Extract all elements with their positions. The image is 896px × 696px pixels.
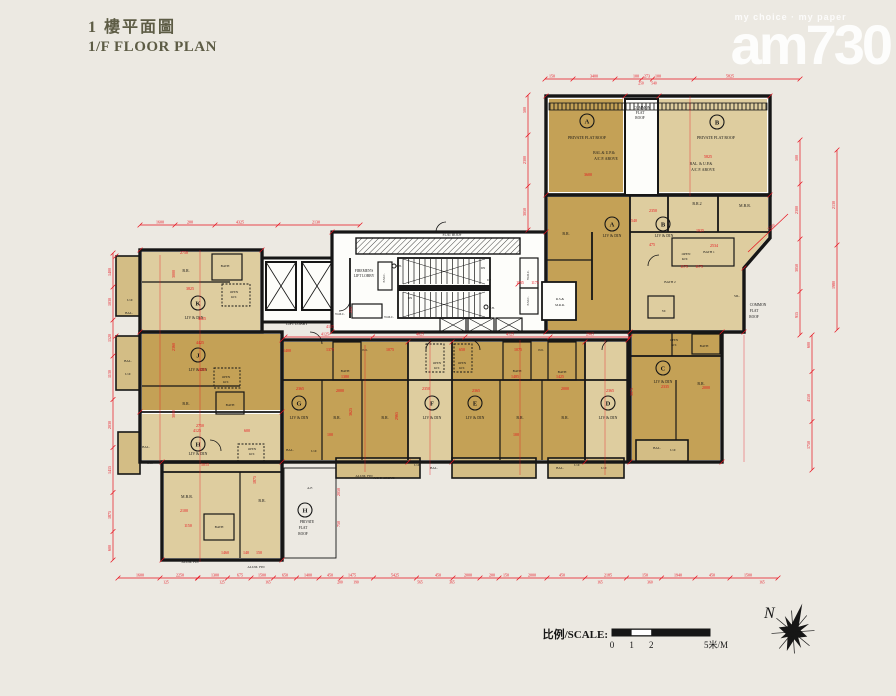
room-label: OPEN xyxy=(682,252,691,256)
room-label: ROOF xyxy=(635,116,645,120)
dim-label: 5825 xyxy=(704,154,712,159)
dim-label: 2534 xyxy=(710,243,718,248)
dim-label: 540 xyxy=(631,218,637,223)
dim-label: 750 xyxy=(336,521,341,527)
dim-label: 2185 xyxy=(604,572,612,577)
room-label: B.R. xyxy=(182,268,189,273)
room-label: LIV & DIN xyxy=(603,233,622,238)
room-label: BAL. xyxy=(430,466,438,470)
room-label: KIT. xyxy=(434,366,440,370)
dim-label: 600 xyxy=(244,428,250,433)
dim-label: 1980 xyxy=(831,281,836,289)
dim-label: 600 xyxy=(806,342,811,348)
dim-label: 2250 xyxy=(176,572,184,577)
room-label: U.P. xyxy=(147,461,153,465)
dim-label: 2000 xyxy=(561,386,569,391)
room-label: COMMON xyxy=(634,106,651,110)
dim-label: 360 xyxy=(647,580,653,584)
room-label: COMMON xyxy=(750,303,767,307)
scale-tick-1: 1 xyxy=(629,640,634,650)
room-label: KIT. xyxy=(682,257,689,261)
unit-letter: H xyxy=(195,441,200,448)
floor-plan-canvas: PRIVATE FLAT ROOFCOMMONFLATROOFPRIVATE F… xyxy=(0,0,896,696)
dim-label: 1460 xyxy=(221,550,229,555)
room-label: KIT. xyxy=(231,295,237,299)
dim-label: 1600 xyxy=(136,572,144,577)
room-label: ALUM. FIN xyxy=(181,560,199,564)
room-label: LIFT LOBBY xyxy=(286,322,308,326)
unit-letter: F xyxy=(430,400,434,407)
dim-label: 450 xyxy=(709,572,715,577)
room-label: B.R. xyxy=(381,415,388,420)
dim-label: 2000 xyxy=(528,572,536,577)
dim-label: 4325 xyxy=(236,219,244,224)
dim-label: 1485 xyxy=(511,374,519,379)
dim-label: 2100 xyxy=(180,508,188,513)
unit-letter: B xyxy=(661,221,666,228)
dim-label: 2030 xyxy=(107,421,112,429)
room-label: OPEN xyxy=(433,361,442,365)
dim-label: 915 xyxy=(794,312,799,318)
room-label: B.R. xyxy=(562,231,569,236)
room-label: BATH xyxy=(226,403,235,407)
room-label: U.P. xyxy=(601,466,607,470)
room-label: M.B.R. xyxy=(181,494,193,499)
dim-label: 450 xyxy=(435,572,441,577)
room-label: BAL. xyxy=(124,359,132,363)
dim-label: 2000 xyxy=(336,388,344,393)
room-label: BATH 1 xyxy=(703,250,715,254)
room-label: FLAT xyxy=(636,111,645,115)
dim-label: 3050 xyxy=(522,208,527,216)
dim-label: 2965 xyxy=(586,331,594,336)
dim-label: 1500 xyxy=(258,572,266,577)
room-label: BAL. xyxy=(142,445,150,449)
dim-label: 3050 xyxy=(794,264,799,272)
room-label: BAL. xyxy=(286,448,294,452)
unit-letter: K xyxy=(195,300,200,307)
dim-label: 2000 xyxy=(702,385,710,390)
dim-label: 2365 xyxy=(472,388,480,393)
room-label: LIV & DIN xyxy=(655,233,674,238)
dim-label: 650 xyxy=(459,347,465,352)
dim-label: 2300 xyxy=(794,206,799,214)
room-label: B.R. xyxy=(258,498,265,503)
room-label: LIV & DIN xyxy=(466,415,485,420)
dim-label: 2360 xyxy=(171,343,176,351)
room-label: E.M.C. xyxy=(526,296,530,305)
dim-label: 165 xyxy=(265,580,271,584)
room-label: OPEN xyxy=(222,375,231,379)
dim-label: 2350 xyxy=(649,208,657,213)
dim-label: 200 xyxy=(337,580,343,584)
dim-label: 4625 xyxy=(198,316,206,321)
room-label: W.M.C. xyxy=(384,315,394,319)
scale-tick-0: 0 xyxy=(610,640,615,650)
dim-label: 500 xyxy=(522,107,527,113)
north-label: N xyxy=(763,605,776,622)
room-label: B.R. xyxy=(561,415,568,420)
dim-label: 250 xyxy=(638,81,644,85)
dim-label: 190 xyxy=(353,580,359,584)
room-label: ROOF xyxy=(298,532,308,536)
room-label: BATH xyxy=(513,369,522,373)
dim-label: 2965 xyxy=(394,412,399,420)
dim-label: 500 xyxy=(794,155,799,161)
dim-label: 450 xyxy=(559,572,565,577)
dim-label: 2365 xyxy=(606,388,614,393)
dim-label: 1030 xyxy=(107,298,112,306)
dim-label: 1875 xyxy=(252,476,257,484)
room-label: P.D. xyxy=(538,348,543,352)
room-label: A/C P. ABOVE xyxy=(691,168,715,172)
dim-label: 200 xyxy=(489,572,495,577)
dim-label: 1940 xyxy=(674,572,682,577)
room-label: UP xyxy=(487,278,491,282)
dim-label: 565 xyxy=(417,580,423,584)
dim-label: 3825 xyxy=(186,286,194,291)
scale-label: 比例/SCALE: xyxy=(543,627,608,641)
dim-label: 4125 xyxy=(506,331,514,336)
dim-label: 3625 xyxy=(348,408,353,416)
room-label: U.P. xyxy=(574,463,580,467)
dim-label: 450 xyxy=(327,572,333,577)
room-label: BAL. xyxy=(556,466,564,470)
room-label: BATH xyxy=(341,369,350,373)
dim-label: 3075 xyxy=(629,388,634,396)
dim-label: 2350 xyxy=(422,386,430,391)
room-label: ALUM. FIN xyxy=(247,565,265,569)
dim-label: 3000 xyxy=(171,270,176,278)
room-label: UP xyxy=(405,286,409,290)
north-arrow: N xyxy=(763,596,826,661)
dim-label: 2050 xyxy=(336,488,341,496)
room-label: BATH xyxy=(221,264,230,268)
room-label: LIV & DIN xyxy=(423,415,442,420)
dim-label: 1135 xyxy=(516,280,524,285)
scale-bar-white-seg xyxy=(632,630,652,635)
dim-label: 2300 xyxy=(522,156,527,164)
dim-label: 5425 xyxy=(391,572,399,577)
dim-label: 1175 xyxy=(680,264,688,269)
room-label: FLAT xyxy=(299,526,308,530)
room-label: BATH xyxy=(215,525,224,529)
dim-label: 1415 xyxy=(107,466,112,474)
room-label: PRIVATE FLAT ROOF xyxy=(568,135,607,140)
dim-label: 1600 xyxy=(156,219,164,224)
dim-label: 1500 xyxy=(744,572,752,577)
dim-label: 2450 xyxy=(198,367,206,372)
dim-label: 2365 xyxy=(296,386,304,391)
unit-letter: H xyxy=(302,507,307,514)
room-label: FLAT ROOF xyxy=(442,233,461,237)
scale-bar-rect xyxy=(612,629,710,636)
dim-label: 1130 xyxy=(107,370,112,378)
dim-label: 2130 xyxy=(312,219,320,224)
dim-label: 150 xyxy=(642,572,648,577)
room-label: SIL. xyxy=(734,294,740,298)
unit-letter: G xyxy=(296,400,301,407)
dim-label: 100 xyxy=(633,73,639,78)
room-label: U.P. xyxy=(670,448,676,452)
dim-label: 1750 xyxy=(806,441,811,449)
room-label: B.R. xyxy=(182,401,189,406)
dim-label: 1075 xyxy=(386,347,394,352)
room-label: U.P. xyxy=(127,298,133,302)
room-label: A/C P. ABOVE xyxy=(594,157,618,161)
dim-label: 475 xyxy=(649,242,655,247)
room-label: OPEN xyxy=(230,290,239,294)
dim-label: 3600 xyxy=(584,172,592,177)
dim-label: 540 xyxy=(651,81,657,85)
dim-label: 4125 xyxy=(321,331,329,336)
room-label: OPEN xyxy=(670,338,679,342)
dim-label: 4150 xyxy=(806,394,811,402)
unit-letter: C xyxy=(661,365,666,372)
dim-label: 273 xyxy=(644,73,650,78)
dim-label: 200 xyxy=(187,219,193,224)
dim-label: 5015 xyxy=(201,462,209,467)
room-label: OPEN xyxy=(458,361,467,365)
room-label: A/C P. ABOVE xyxy=(373,476,394,480)
room-label: ALUM. FIN xyxy=(355,474,373,478)
room-label: F.H. xyxy=(396,264,401,268)
dim-label: 1300 xyxy=(211,572,219,577)
room-label: KIT. xyxy=(249,452,255,456)
floor-plan-page: 1 樓平面圖 1/F FLOOR PLAN my choice · my pap… xyxy=(0,0,896,696)
dim-label: 1175 xyxy=(531,280,539,285)
dim-label: 1380 xyxy=(341,374,349,379)
dim-label: 100 xyxy=(655,73,661,78)
dim-label: 140 xyxy=(243,550,249,555)
room-label: FLAT xyxy=(750,309,759,313)
room-label: BATH xyxy=(700,344,709,348)
dim-label: 125 xyxy=(219,580,225,584)
dim-label: 2000 xyxy=(464,572,472,577)
room-label: W.M.C. xyxy=(526,270,530,280)
dim-label: 1375 xyxy=(326,347,334,352)
room-label: E.M.C. xyxy=(382,273,386,282)
dim-label: 225 xyxy=(348,307,353,313)
room-label: PRIVATE FLAT ROOF xyxy=(697,135,736,140)
unit-letter: A xyxy=(585,118,590,125)
dim-label: 150 xyxy=(503,572,509,577)
dim-label: 1150 xyxy=(184,523,192,528)
room-label: B.R.2 xyxy=(692,201,701,206)
unit-letter: A xyxy=(610,221,615,228)
room-label: OPEN xyxy=(248,447,257,451)
room-label: DN xyxy=(481,266,486,270)
dim-label: 2130 xyxy=(831,201,836,209)
room-label: BAL. & U.P.& xyxy=(690,162,713,166)
room-label: ST. xyxy=(662,309,667,313)
dim-label: 1400 xyxy=(107,268,112,276)
room-label: M.R.R. xyxy=(555,303,565,307)
dim-label: 5825 xyxy=(726,73,734,78)
dim-label: 100 xyxy=(513,432,519,437)
room-label: LIV & DIN xyxy=(189,451,208,456)
dim-label: 675 xyxy=(237,572,243,577)
room-label: F.H. xyxy=(489,306,494,310)
room-label: R.S.& xyxy=(556,297,565,301)
dim-label: 1475 xyxy=(348,572,356,577)
dim-label: 1175 xyxy=(695,264,703,269)
room-label: U.P. xyxy=(125,372,131,376)
room-label: FIREMEN'S xyxy=(355,269,373,273)
room-label: DN xyxy=(408,296,413,300)
room-label: BAL. xyxy=(653,446,661,450)
dim-label: 3400 xyxy=(590,73,598,78)
dim-label: 165 xyxy=(759,580,765,584)
dim-label: 165 xyxy=(597,580,603,584)
scale-bar: 比例/SCALE: 0 1 2 5米/M xyxy=(543,627,728,650)
dim-label: 150 xyxy=(256,550,262,555)
unit-letter: E xyxy=(473,400,477,407)
dim-label: 4125 xyxy=(326,324,334,329)
dim-label: 1400 xyxy=(283,348,291,353)
dim-label: 600 xyxy=(107,545,112,551)
dim-label: 1425 xyxy=(556,374,564,379)
room-label: LIFT LOBBY xyxy=(354,274,375,278)
dim-label: 2335 xyxy=(661,384,669,389)
dim-label: 1925 xyxy=(696,228,704,233)
dim-label: 125 xyxy=(163,580,169,584)
scale-tick-2: 2 xyxy=(649,640,654,650)
dim-label: 1520 xyxy=(107,334,112,342)
dim-label: 1875 xyxy=(107,511,112,519)
dim-label: 3000 xyxy=(171,410,176,418)
room-label: W.M.C. xyxy=(335,312,345,316)
room-label: KIT. xyxy=(223,380,229,384)
room-label: KIT. xyxy=(671,343,677,347)
dim-label: 2750 xyxy=(180,250,188,255)
room-label: U.P. xyxy=(311,449,317,453)
unit-letter: D xyxy=(606,400,611,407)
room-label: B.R. xyxy=(333,415,340,420)
dim-label: 650 xyxy=(282,572,288,577)
room-label: U.P. xyxy=(414,463,420,467)
room-label: BAL. xyxy=(125,311,133,315)
room-label: BATH 2 xyxy=(664,280,676,284)
room-label: KIT. xyxy=(459,366,465,370)
dim-label: 100 xyxy=(327,432,333,437)
room-label: M.B.R. xyxy=(739,203,751,208)
room-label: LIV & DIN xyxy=(599,415,618,420)
dim-label: 150 xyxy=(549,73,555,78)
room-label: A.F. xyxy=(307,486,313,490)
dim-label: 1400 xyxy=(304,572,312,577)
dim-label: 365 xyxy=(449,580,455,584)
room-label: BAL.& U.P.& xyxy=(593,151,615,155)
scale-tick-5m: 5米/M xyxy=(704,639,728,650)
dim-label: 1075 xyxy=(514,347,522,352)
room-label: LIV & DIN xyxy=(290,415,309,420)
room-label: PRIVATE xyxy=(300,520,315,524)
unit-letter: B xyxy=(715,119,720,126)
dim-label: 4625 xyxy=(416,331,424,336)
room-label: ROOF xyxy=(749,315,759,319)
